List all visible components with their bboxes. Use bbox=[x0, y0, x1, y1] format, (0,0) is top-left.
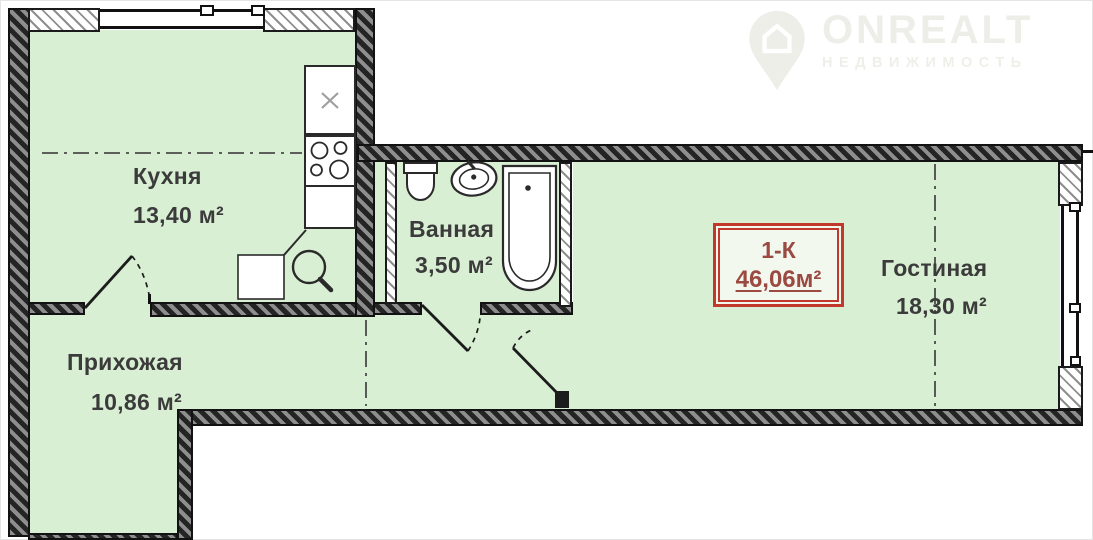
kitchen-window-glass bbox=[100, 11, 263, 26]
hallway-lower-floor bbox=[30, 409, 177, 534]
hallway-area-label: 10,86 м² bbox=[91, 389, 182, 416]
wall-bathroom-bottom-left bbox=[373, 302, 422, 315]
pier-kitchen-window-right bbox=[263, 8, 355, 32]
watermark-text: ONREALT НЕДВИЖИМОСТЬ bbox=[822, 8, 1033, 71]
kitchen-window-mullion-1 bbox=[200, 5, 214, 16]
unit-card-inner-border: 1-К 46,06м² bbox=[718, 228, 839, 302]
unit-area-label: 46,06м² bbox=[736, 266, 822, 294]
pier-living-window-bottom bbox=[1058, 366, 1083, 410]
kitchen-window-inner-line bbox=[100, 26, 263, 29]
wall-kitchen-right bbox=[355, 8, 375, 317]
watermark-subtitle: НЕДВИЖИМОСТЬ bbox=[822, 55, 1033, 71]
kitchen-area-label: 13,40 м² bbox=[133, 202, 224, 229]
wall-exterior-left bbox=[8, 8, 30, 537]
unit-summary-card: 1-К 46,06м² bbox=[713, 223, 844, 307]
bathroom-door-opening bbox=[422, 302, 480, 315]
watermark: ONREALT НЕДВИЖИМОСТЬ bbox=[744, 8, 1033, 94]
duct-gap-strip bbox=[375, 162, 385, 304]
wall-stub-top-right bbox=[1083, 150, 1093, 153]
living-window-mullion-2 bbox=[1069, 303, 1081, 313]
wall-kitchen-bottom-right bbox=[150, 302, 357, 317]
wall-bathroom-right-partition bbox=[559, 162, 572, 307]
wall-kitchen-bottom-left bbox=[28, 302, 85, 315]
location-pin-house-icon bbox=[744, 8, 810, 94]
wall-hallway-bottom-stub bbox=[28, 533, 178, 540]
living-window-mullion-3 bbox=[1070, 356, 1081, 366]
living-window-outer-line bbox=[1076, 206, 1079, 366]
living-window-mullion-1 bbox=[1069, 202, 1081, 212]
living-area-label: 18,30 м² bbox=[896, 293, 987, 320]
bathroom-name-label: Ванная bbox=[409, 216, 494, 243]
kitchen-door-opening bbox=[85, 302, 150, 315]
kitchen-name-label: Кухня bbox=[133, 163, 202, 190]
living-name-label: Гостиная bbox=[881, 255, 987, 282]
kitchen-window-mullion-2 bbox=[251, 5, 265, 16]
hallway-name-label: Прихожая bbox=[67, 349, 183, 376]
pier-living-window-top bbox=[1058, 162, 1083, 206]
kitchen-door-jamb-tick bbox=[148, 294, 151, 304]
wall-bathroom-left-partition bbox=[385, 162, 397, 304]
wall-top-right-section bbox=[357, 144, 1083, 162]
watermark-brand: ONREALT bbox=[822, 8, 1033, 52]
bathroom-area-label: 3,50 м² bbox=[415, 252, 493, 279]
floorplan-canvas: ONREALT НЕДВИЖИМОСТЬ bbox=[0, 0, 1093, 540]
kitchen-window-outer-line bbox=[100, 9, 263, 12]
wall-hallway-right bbox=[177, 409, 193, 540]
unit-type-label: 1-К bbox=[761, 237, 796, 264]
pier-kitchen-window-left bbox=[28, 8, 100, 32]
wall-bottom-main bbox=[177, 409, 1083, 426]
living-window-inner-line bbox=[1061, 206, 1064, 366]
